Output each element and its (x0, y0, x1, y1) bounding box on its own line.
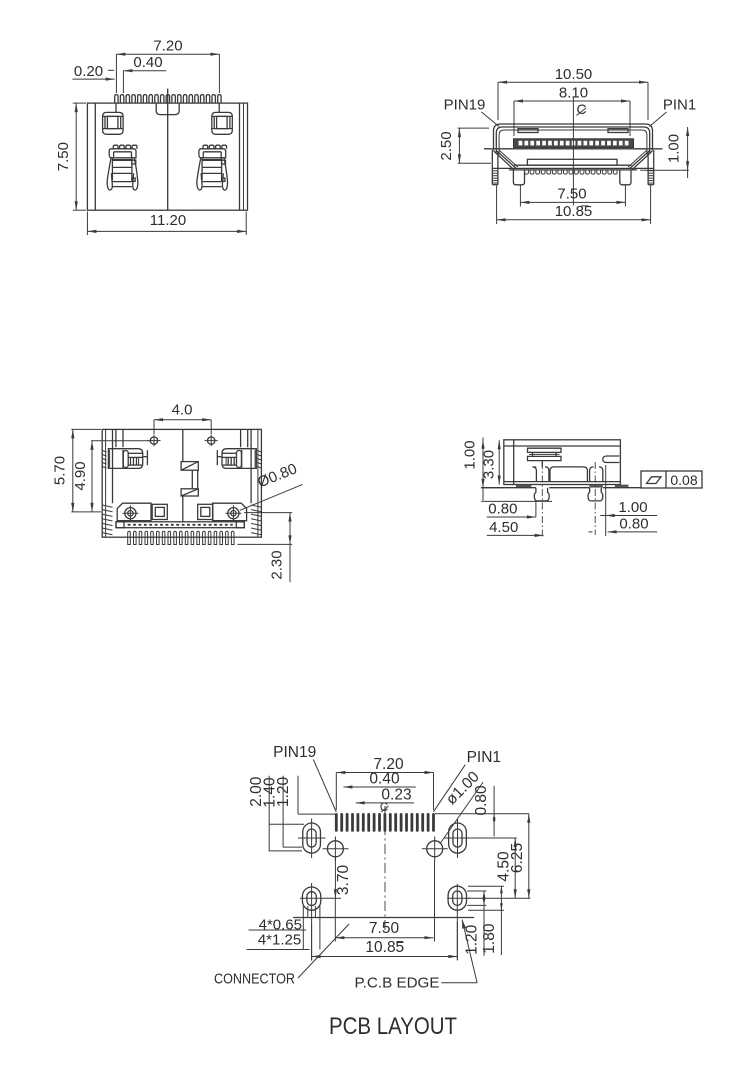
svg-text:10.85: 10.85 (365, 939, 404, 956)
svg-text:PIN1: PIN1 (467, 749, 501, 766)
svg-text:0.40: 0.40 (369, 771, 400, 788)
svg-text:4.0: 4.0 (172, 402, 193, 419)
svg-text:3.70: 3.70 (335, 865, 352, 896)
svg-text:1.00: 1.00 (666, 134, 683, 163)
svg-text:7.50: 7.50 (55, 142, 72, 171)
svg-text:10.50: 10.50 (555, 66, 593, 83)
svg-text:2.50: 2.50 (438, 131, 455, 160)
svg-text:0.40: 0.40 (133, 54, 162, 71)
svg-text:1.20: 1.20 (464, 924, 481, 955)
svg-text:8.10: 8.10 (559, 85, 588, 102)
svg-text:7.50: 7.50 (369, 920, 400, 937)
svg-text:PIN1: PIN1 (663, 97, 696, 114)
svg-text:CONNECTOR: CONNECTOR (214, 971, 295, 988)
svg-text:0.08: 0.08 (670, 472, 697, 488)
svg-text:PIN19: PIN19 (273, 744, 316, 761)
svg-text:0.80: 0.80 (488, 501, 517, 518)
svg-text:PCB LAYOUT: PCB LAYOUT (329, 1013, 457, 1040)
svg-text:1.00: 1.00 (462, 440, 479, 469)
svg-text:4.50: 4.50 (489, 519, 518, 536)
svg-text:7.20: 7.20 (153, 38, 182, 55)
svg-text:3.30: 3.30 (481, 450, 498, 479)
svg-text:0.80: 0.80 (619, 515, 648, 532)
svg-text:1.80: 1.80 (481, 923, 498, 954)
svg-text:P.C.B EDGE: P.C.B EDGE (355, 975, 440, 992)
svg-text:0.80: 0.80 (473, 785, 490, 816)
svg-text:10.85: 10.85 (555, 203, 593, 220)
svg-text:0.20: 0.20 (74, 63, 103, 80)
svg-text:1.20: 1.20 (275, 776, 292, 807)
svg-text:C: C (380, 802, 388, 814)
svg-text:6.25: 6.25 (509, 843, 526, 873)
svg-text:2.30: 2.30 (269, 550, 286, 579)
svg-text:11.20: 11.20 (150, 212, 186, 229)
svg-text:4.90: 4.90 (72, 461, 89, 490)
svg-text:5.70: 5.70 (52, 456, 69, 485)
svg-text:PIN19: PIN19 (444, 97, 486, 114)
svg-text:4*1.25: 4*1.25 (258, 932, 301, 949)
svg-text:1.00: 1.00 (618, 499, 647, 516)
svg-text:7.50: 7.50 (557, 186, 586, 203)
svg-text:0.23: 0.23 (381, 787, 411, 804)
